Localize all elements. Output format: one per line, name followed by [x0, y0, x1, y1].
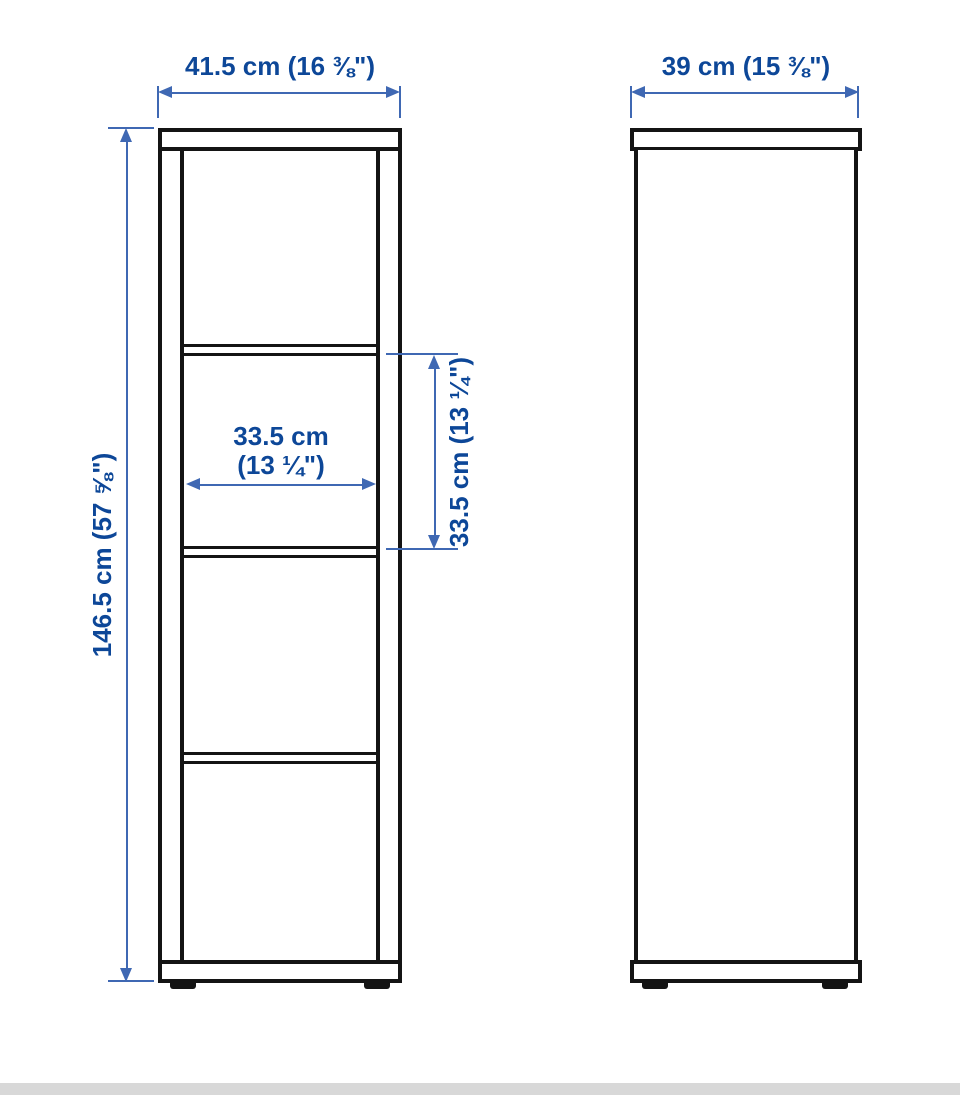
- inner-width-label-line2: (13 ¼"): [181, 451, 381, 480]
- front-right-inner-wall: [376, 150, 380, 960]
- front-height-dimension-label: 146.5 cm (57 ⅝"): [88, 409, 118, 701]
- extension-tick: [108, 980, 154, 982]
- product-dimension-diagram: 41.5 cm (16 ⅜") 146.5 cm (57 ⅝") 33.5 cm…: [0, 0, 960, 1095]
- arrowhead-down-icon: [428, 535, 440, 549]
- dimension-line: [126, 138, 128, 972]
- extension-tick: [399, 86, 401, 118]
- side-depth-dimension-arrow: [631, 85, 859, 101]
- extension-tick: [157, 86, 159, 118]
- side-body-panel: [634, 150, 858, 960]
- inner-width-dimension-arrow: [186, 477, 376, 493]
- front-bottom-panel: [158, 960, 402, 983]
- shelf-divider-1: [184, 344, 376, 356]
- front-left-foot: [170, 981, 196, 989]
- shelf-divider-3: [184, 752, 376, 764]
- arrowhead-right-icon: [362, 478, 376, 490]
- front-right-outer-wall: [398, 150, 402, 960]
- front-width-dimension-arrow: [158, 85, 400, 101]
- arrowhead-up-icon: [120, 128, 132, 142]
- arrowhead-left-icon: [631, 86, 645, 98]
- arrowhead-left-icon: [158, 86, 172, 98]
- arrowhead-left-icon: [186, 478, 200, 490]
- side-depth-dimension-label: 39 cm (15 ⅜"): [630, 52, 862, 81]
- side-right-foot: [822, 981, 848, 989]
- shelf-divider-2: [184, 546, 376, 558]
- arrowhead-up-icon: [428, 355, 440, 369]
- extension-tick: [630, 86, 632, 118]
- front-height-dimension-arrow: [119, 128, 135, 982]
- inner-height-dimension-label: 33.5 cm (13 ¼"): [445, 342, 475, 562]
- extension-tick: [857, 86, 859, 118]
- arrowhead-right-icon: [386, 86, 400, 98]
- front-right-foot: [364, 981, 390, 989]
- side-bottom-panel: [630, 960, 862, 983]
- front-width-dimension-label: 41.5 cm (16 ⅜"): [158, 52, 402, 81]
- bottom-gray-bar: [0, 1083, 960, 1095]
- extension-tick: [108, 127, 154, 129]
- dimension-line: [168, 92, 390, 94]
- front-top-panel: [158, 128, 402, 151]
- front-left-outer-wall: [158, 150, 162, 960]
- dimension-line: [641, 92, 849, 94]
- inner-height-dimension-arrow: [427, 355, 443, 549]
- dimension-line: [434, 365, 436, 539]
- dimension-line: [196, 484, 366, 486]
- inner-width-label-line1: 33.5 cm: [181, 422, 381, 451]
- side-top-panel: [630, 128, 862, 151]
- inner-width-dimension-label: 33.5 cm (13 ¼"): [181, 422, 381, 480]
- side-left-foot: [642, 981, 668, 989]
